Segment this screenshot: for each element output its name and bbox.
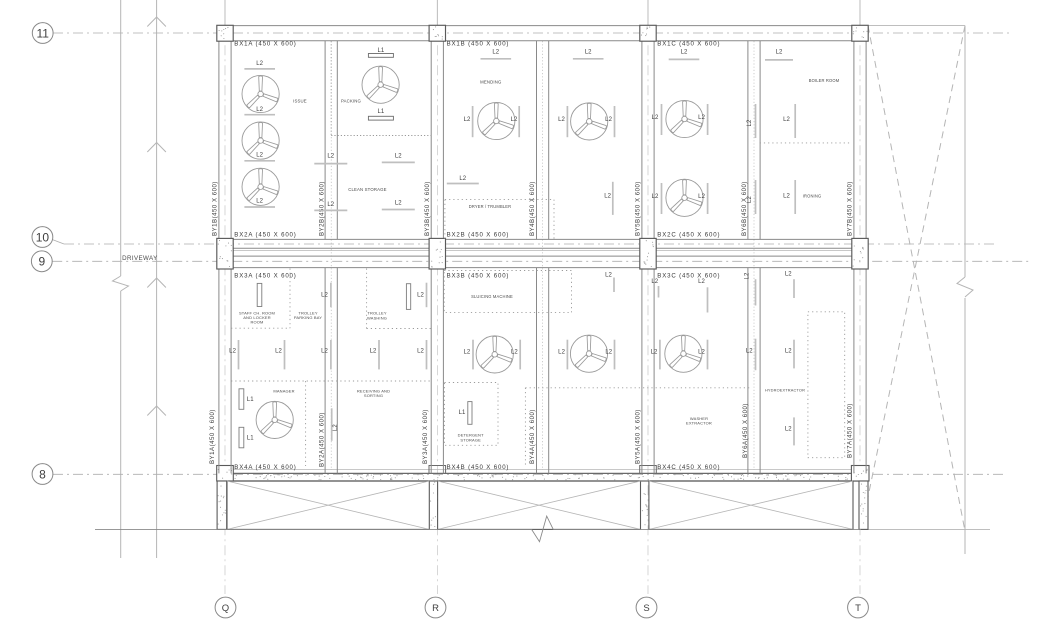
svg-text:L2: L2	[652, 194, 659, 200]
svg-text:9: 9	[38, 255, 45, 269]
svg-text:Q: Q	[222, 603, 229, 614]
svg-text:ROOM: ROOM	[250, 320, 263, 325]
svg-text:ISSUE: ISSUE	[293, 99, 307, 104]
svg-text:BY6A(450 X 600): BY6A(450 X 600)	[742, 403, 749, 458]
svg-text:L2: L2	[327, 202, 334, 208]
svg-text:L2: L2	[605, 350, 612, 356]
svg-text:HYDROEXTRACTOR: HYDROEXTRACTOR	[765, 387, 805, 392]
svg-text:MENDING: MENDING	[480, 80, 502, 85]
svg-text:BY2A(450 X 600): BY2A(450 X 600)	[318, 412, 325, 467]
svg-text:R: R	[432, 603, 439, 614]
svg-text:L2: L2	[417, 349, 424, 355]
svg-text:L2: L2	[605, 117, 612, 123]
svg-text:BX1B (450 X 600): BX1B (450 X 600)	[447, 41, 510, 48]
svg-text:BY5B(450 X 600): BY5B(450 X 600)	[634, 181, 641, 236]
svg-text:L2: L2	[464, 117, 471, 123]
svg-text:BY2B(450 X 600): BY2B(450 X 600)	[318, 181, 325, 236]
svg-text:L2: L2	[785, 426, 792, 432]
svg-text:11: 11	[36, 26, 49, 40]
svg-text:L2: L2	[605, 273, 612, 279]
svg-text:L2: L2	[776, 50, 783, 56]
svg-text:S: S	[643, 603, 649, 614]
svg-text:BX2C (450 X 600): BX2C (450 X 600)	[657, 232, 720, 239]
svg-text:L1: L1	[247, 436, 254, 442]
svg-text:BY4B(450 X 600): BY4B(450 X 600)	[529, 181, 536, 236]
svg-text:DRIVEWAY: DRIVEWAY	[122, 255, 158, 262]
svg-text:L2: L2	[321, 292, 328, 298]
svg-text:L2: L2	[747, 196, 753, 203]
svg-text:L2: L2	[698, 115, 705, 121]
svg-text:L2: L2	[321, 349, 328, 355]
svg-text:L2: L2	[558, 350, 565, 356]
svg-text:L2: L2	[395, 201, 402, 207]
svg-text:BX1A (450 X 600): BX1A (450 X 600)	[234, 41, 296, 48]
svg-text:BOILER ROOM: BOILER ROOM	[809, 78, 840, 83]
svg-text:T: T	[855, 603, 861, 614]
svg-text:STORAGE: STORAGE	[460, 437, 481, 442]
svg-text:L2: L2	[492, 50, 499, 56]
svg-text:L2: L2	[783, 117, 790, 123]
svg-text:BY3B(450 X 600): BY3B(450 X 600)	[424, 181, 431, 236]
svg-text:L2: L2	[651, 279, 658, 285]
svg-text:BX4B (450 X 600): BX4B (450 X 600)	[447, 464, 510, 471]
svg-text:L2: L2	[698, 194, 705, 200]
svg-text:L2: L2	[370, 349, 377, 355]
svg-text:BX4A (450 X 600): BX4A (450 X 600)	[234, 464, 296, 471]
svg-text:BY7A(450 X 600): BY7A(450 X 600)	[847, 403, 854, 458]
svg-text:L2: L2	[604, 194, 611, 200]
svg-text:8: 8	[39, 467, 46, 481]
svg-text:BY4A(450 X 600): BY4A(450 X 600)	[529, 409, 536, 464]
svg-text:IRONING: IRONING	[803, 194, 822, 199]
svg-text:CLEAN STORAGE: CLEAN STORAGE	[348, 187, 386, 192]
svg-text:DRYER / TRUMBLER: DRYER / TRUMBLER	[469, 204, 512, 209]
svg-text:L2: L2	[652, 115, 659, 121]
svg-text:BY6B(450 X 600): BY6B(450 X 600)	[741, 181, 748, 236]
svg-text:BX1C (450 X 600): BX1C (450 X 600)	[657, 41, 720, 48]
svg-text:EXTRACTOR: EXTRACTOR	[686, 421, 712, 426]
svg-text:BY1B(450 X 600): BY1B(450 X 600)	[212, 181, 219, 236]
svg-text:L1: L1	[247, 397, 254, 403]
svg-text:L2: L2	[327, 154, 334, 160]
svg-text:BX3C (450 X 600): BX3C (450 X 600)	[657, 272, 720, 279]
svg-text:PACKING: PACKING	[341, 99, 362, 104]
svg-text:L2: L2	[651, 350, 658, 356]
svg-text:L2: L2	[333, 424, 339, 431]
svg-text:10: 10	[36, 230, 50, 244]
svg-text:L2: L2	[275, 349, 282, 355]
svg-text:BX3B (450 X 600): BX3B (450 X 600)	[447, 272, 510, 279]
svg-text:L2: L2	[511, 350, 518, 356]
svg-text:MANAGER: MANAGER	[273, 389, 294, 394]
svg-text:BY1A(450 X 600): BY1A(450 X 600)	[209, 409, 216, 464]
svg-text:BY3A(450 X 600): BY3A(450 X 600)	[422, 409, 429, 464]
svg-text:L2: L2	[417, 292, 424, 298]
svg-text:L2: L2	[681, 50, 688, 56]
svg-text:BY7B(450 X 600): BY7B(450 X 600)	[847, 181, 854, 236]
svg-text:BX3A (450 X 600): BX3A (450 X 600)	[234, 272, 296, 279]
svg-text:BX2B (450 X 600): BX2B (450 X 600)	[447, 232, 510, 239]
svg-text:L2: L2	[558, 117, 565, 123]
svg-text:L2: L2	[747, 119, 753, 126]
svg-text:L2: L2	[511, 117, 518, 123]
svg-text:L2: L2	[783, 194, 790, 200]
svg-text:BY5A(450 X 600): BY5A(450 X 600)	[634, 409, 641, 464]
svg-text:L2: L2	[746, 349, 753, 355]
svg-text:L2: L2	[256, 199, 263, 205]
svg-text:BX4C (450 X 600): BX4C (450 X 600)	[657, 464, 720, 471]
svg-text:L2: L2	[256, 61, 263, 67]
svg-text:SORTING: SORTING	[364, 393, 383, 398]
svg-text:L2: L2	[463, 350, 470, 356]
svg-text:L2: L2	[256, 152, 263, 158]
svg-text:L1: L1	[377, 109, 384, 115]
svg-text:L2: L2	[585, 50, 592, 56]
svg-text:SLUICING MACHINE: SLUICING MACHINE	[471, 294, 513, 299]
svg-text:L2: L2	[698, 279, 705, 285]
svg-text:L2: L2	[745, 272, 751, 279]
svg-text:BX2A (450 X 600): BX2A (450 X 600)	[234, 232, 296, 239]
svg-text:L2: L2	[256, 107, 263, 113]
svg-text:L2: L2	[459, 176, 466, 182]
svg-text:L1: L1	[459, 410, 466, 416]
svg-text:WASHING: WASHING	[367, 315, 387, 320]
svg-text:L2: L2	[785, 349, 792, 355]
svg-text:L2: L2	[395, 154, 402, 160]
svg-text:L2: L2	[698, 350, 705, 356]
svg-text:L2: L2	[229, 349, 236, 355]
svg-text:L2: L2	[785, 272, 792, 278]
svg-text:PARKING BAY: PARKING BAY	[294, 315, 322, 320]
